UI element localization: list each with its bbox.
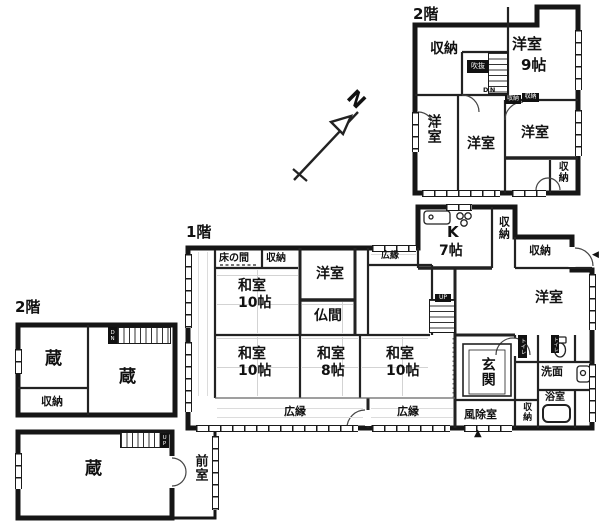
window	[422, 190, 500, 197]
window	[185, 342, 192, 412]
room-label-toilet: トイレ	[518, 335, 527, 358]
room-label-western: 洋室	[521, 126, 549, 142]
veranda-boards	[190, 252, 213, 396]
stairs-dn-label: DN	[483, 87, 497, 94]
room-label-veranda: 広縁	[284, 406, 306, 418]
room-label-kura: 蔵	[85, 460, 102, 479]
staircase-main-1f-up	[429, 299, 455, 333]
room-label-bathroom: 浴室	[545, 392, 565, 403]
floor-plan: 2階 収納 洋室 9帖 吹抜 DN 収納 収納 洋室 洋室 洋室 収納 1階 床…	[0, 0, 600, 526]
room-label-butsuma: 仏間	[314, 309, 342, 325]
kitchen-faucet-icon	[429, 215, 433, 219]
room-label-storage: 収納	[430, 42, 458, 58]
floor-label-main-1f: 1階	[186, 224, 211, 241]
window	[15, 453, 22, 489]
room-size-label: 10帖	[386, 364, 419, 380]
room-label-anteroom: 前室	[192, 454, 207, 482]
room-label-storage: 収納	[521, 402, 531, 422]
room-label-washitsu: 和室	[238, 347, 266, 363]
window	[185, 254, 192, 328]
room-label-storage: 収納	[266, 253, 286, 264]
door-arc	[505, 102, 523, 120]
door-arc	[575, 248, 593, 266]
compass	[293, 112, 358, 181]
entrance-marker-icon: ◀	[592, 250, 599, 260]
closet-label: 収納	[522, 93, 539, 102]
room-label-western: 洋室	[512, 36, 542, 53]
stove-burner-icon	[465, 213, 471, 219]
stairs-up-label: UP	[435, 294, 451, 302]
room-label-storage: 収納	[529, 245, 551, 257]
floor-plan-drawing	[0, 0, 600, 526]
window	[412, 112, 419, 152]
room-label-washroom: 洗面	[541, 366, 563, 378]
room-size-label: 9帖	[521, 57, 546, 74]
door-arc	[462, 95, 479, 112]
void-label: 吹抜	[467, 60, 489, 73]
room-label-washitsu: 和室	[386, 347, 414, 363]
room-label-entrance: 玄関	[479, 357, 495, 387]
door-opening	[169, 456, 176, 488]
window	[196, 425, 358, 432]
compass-arrowhead-icon	[331, 116, 351, 134]
room-label-storage: 収納	[41, 396, 63, 408]
closet-label: 収納	[505, 95, 521, 104]
room-label-windbreak: 風除室	[464, 409, 497, 421]
washbasin-drain-icon	[581, 371, 586, 376]
window	[446, 204, 472, 211]
window	[15, 349, 22, 374]
stove-burner-icon	[461, 220, 467, 226]
room-label-kitchen: K	[447, 224, 459, 241]
room-size-label: 7帖	[439, 244, 463, 260]
room-label-tokonoma: 床の間	[219, 253, 249, 264]
room-label-kura: 蔵	[45, 350, 62, 369]
room-label-western: 洋室	[467, 137, 495, 153]
room-size-label: 8帖	[321, 364, 345, 380]
door-opening	[569, 247, 576, 267]
room-label-veranda: 広縁	[397, 406, 419, 418]
room-label-kura: 蔵	[119, 368, 136, 387]
room-label-western: 洋室	[316, 267, 344, 283]
room-label-washitsu: 和室	[317, 347, 345, 363]
window	[372, 425, 450, 432]
window	[589, 274, 596, 330]
window	[512, 190, 546, 197]
window	[212, 436, 219, 510]
wall-segment	[455, 268, 515, 428]
inner-walls-main-2f	[415, 7, 578, 193]
room-label-western: 洋室	[535, 291, 563, 307]
window	[464, 425, 512, 432]
room-label-storage: 収納	[497, 216, 509, 240]
room-label-washitsu: 和室	[238, 279, 266, 295]
staircase-kura-2f-dn	[117, 327, 171, 344]
entrance-marker-icon: ▲	[474, 428, 482, 439]
stairs-dn-label: DN	[108, 327, 117, 344]
window	[589, 364, 596, 422]
stairs-up-label: UP	[160, 433, 169, 448]
window	[575, 110, 582, 156]
room-label-veranda: 広縁	[381, 251, 399, 261]
room-size-label: 10帖	[238, 296, 271, 312]
floor-label-kura-2f: 2階	[15, 299, 40, 316]
floor-label-main-2f: 2階	[413, 6, 438, 23]
room-size-label: 10帖	[238, 364, 271, 380]
window	[575, 30, 582, 90]
room-label-toilet: トイレ	[551, 335, 559, 353]
bathtub-icon	[543, 405, 570, 422]
room-label-western: 洋室	[425, 114, 441, 144]
stove-burner-icon	[457, 213, 463, 219]
room-label-storage: 収納	[556, 161, 567, 183]
door-arc	[536, 178, 548, 190]
